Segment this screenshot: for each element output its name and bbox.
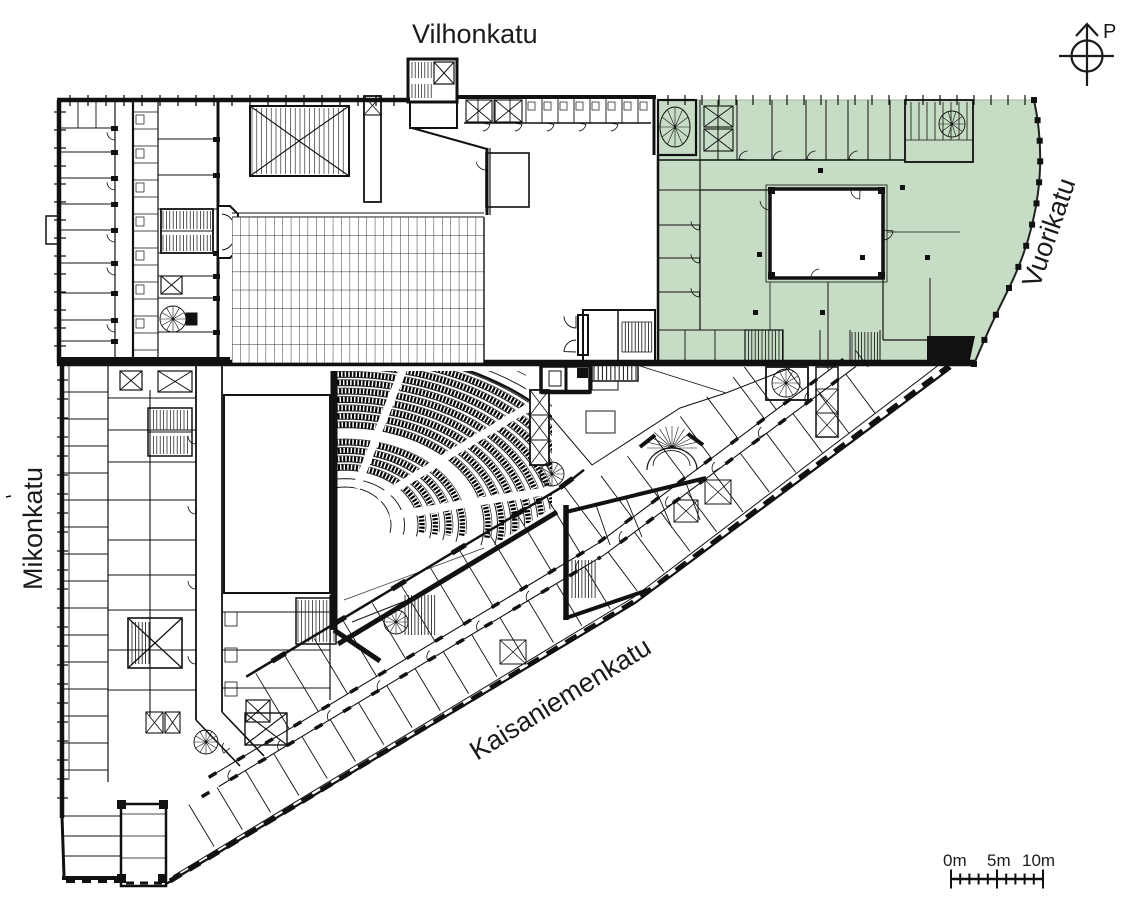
svg-text:Vilhonkatu: Vilhonkatu	[412, 19, 538, 49]
svg-text:10m: 10m	[1022, 851, 1055, 870]
svg-text:P: P	[1103, 21, 1116, 43]
svg-text:0m: 0m	[943, 851, 967, 870]
svg-text:Mikonkatu: Mikonkatu	[18, 467, 48, 590]
svg-text:5m: 5m	[987, 851, 1011, 870]
